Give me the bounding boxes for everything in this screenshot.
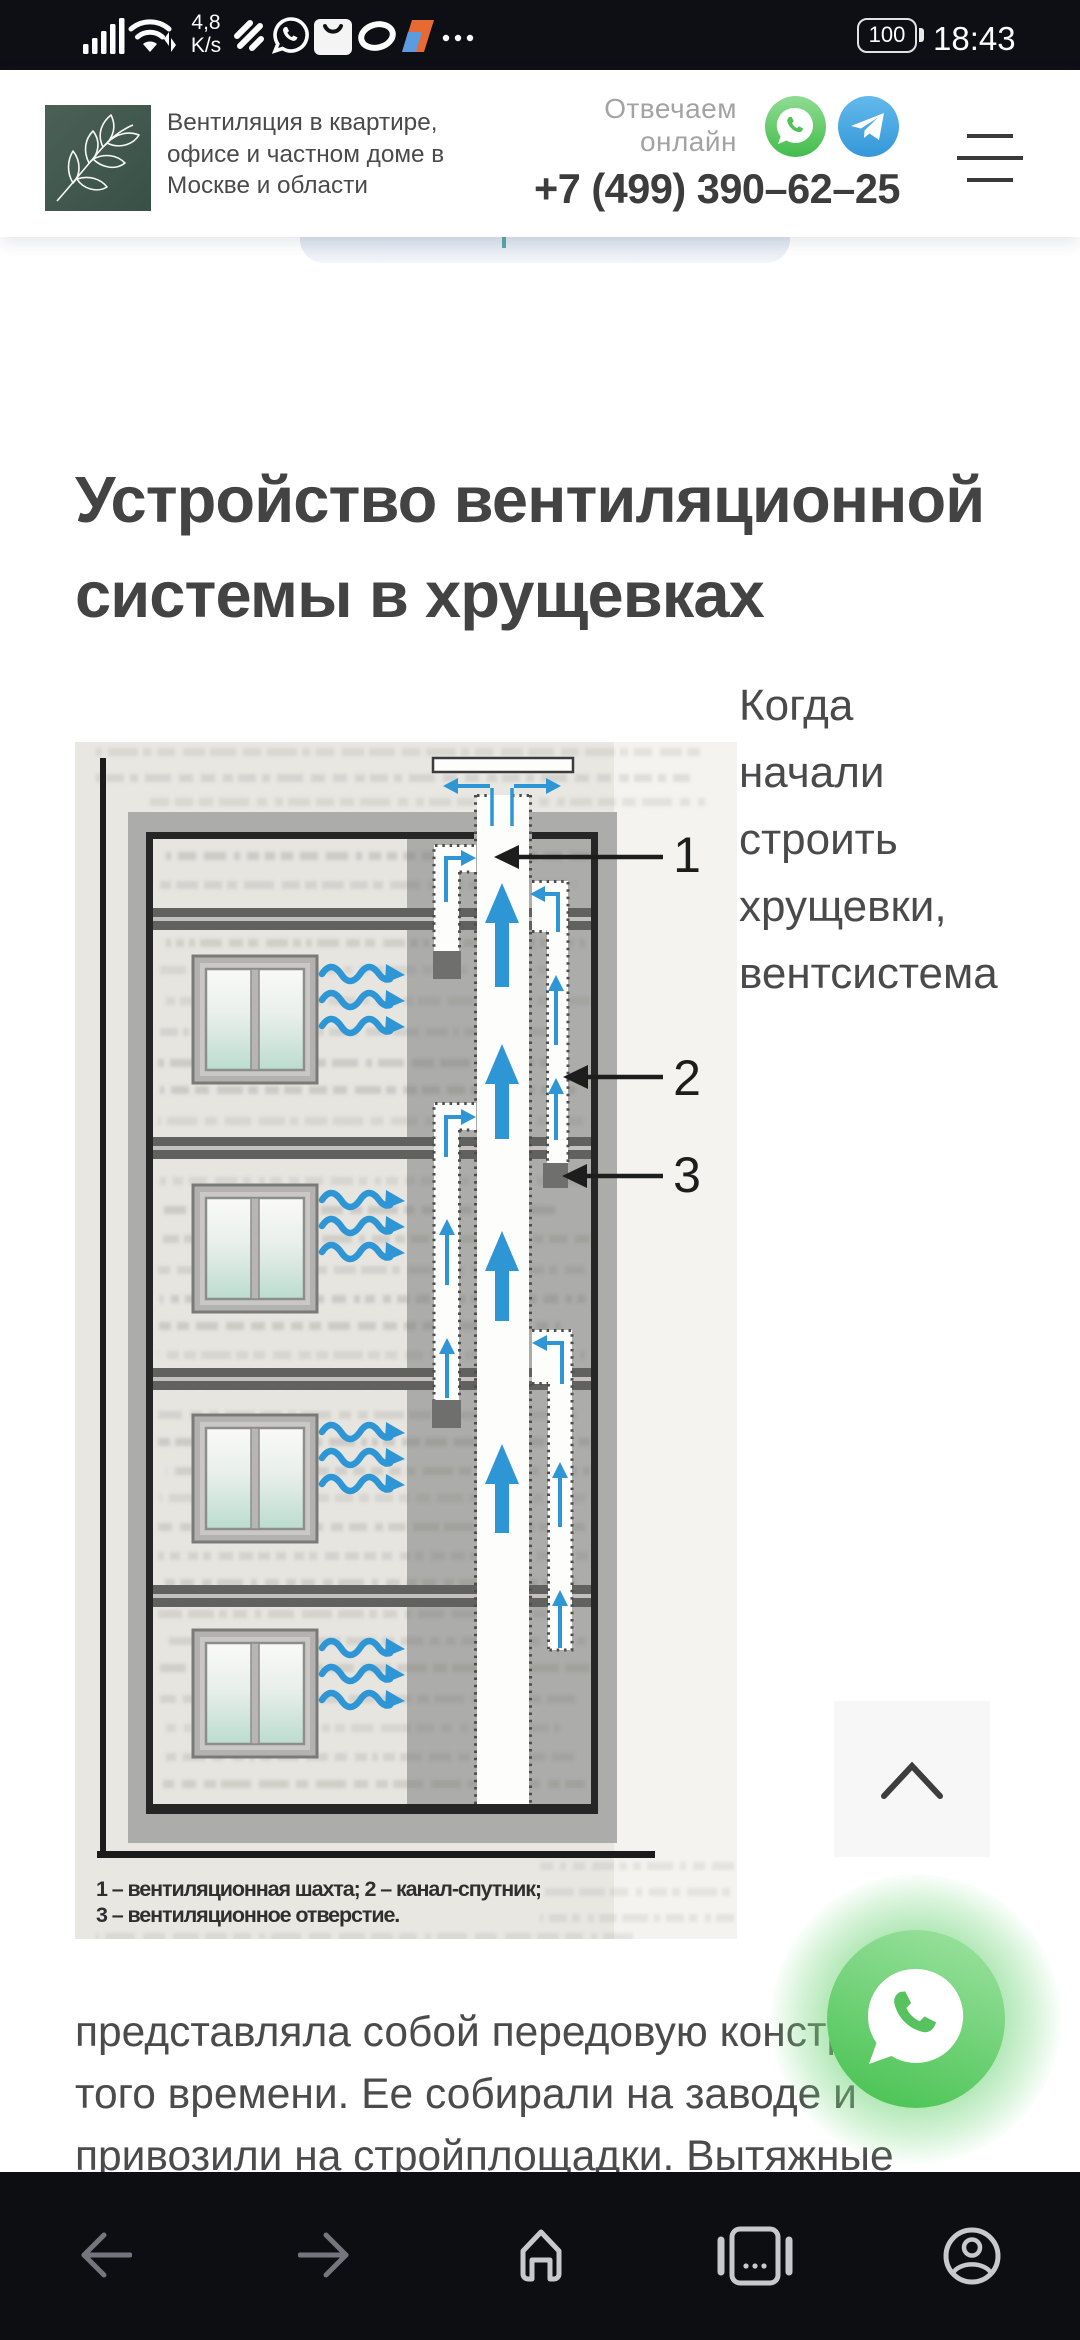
svg-text:3 – вентиляционное отверстие.: 3 – вентиляционное отверстие. <box>96 1903 399 1927</box>
svg-text:1: 1 <box>673 827 701 883</box>
svg-text:3: 3 <box>673 1147 701 1203</box>
svg-text:2: 2 <box>673 1050 701 1106</box>
svg-text:1 – вентиляционная шахта; 2 –: 1 – вентиляционная шахта; 2 – канал-спут… <box>96 1877 541 1901</box>
